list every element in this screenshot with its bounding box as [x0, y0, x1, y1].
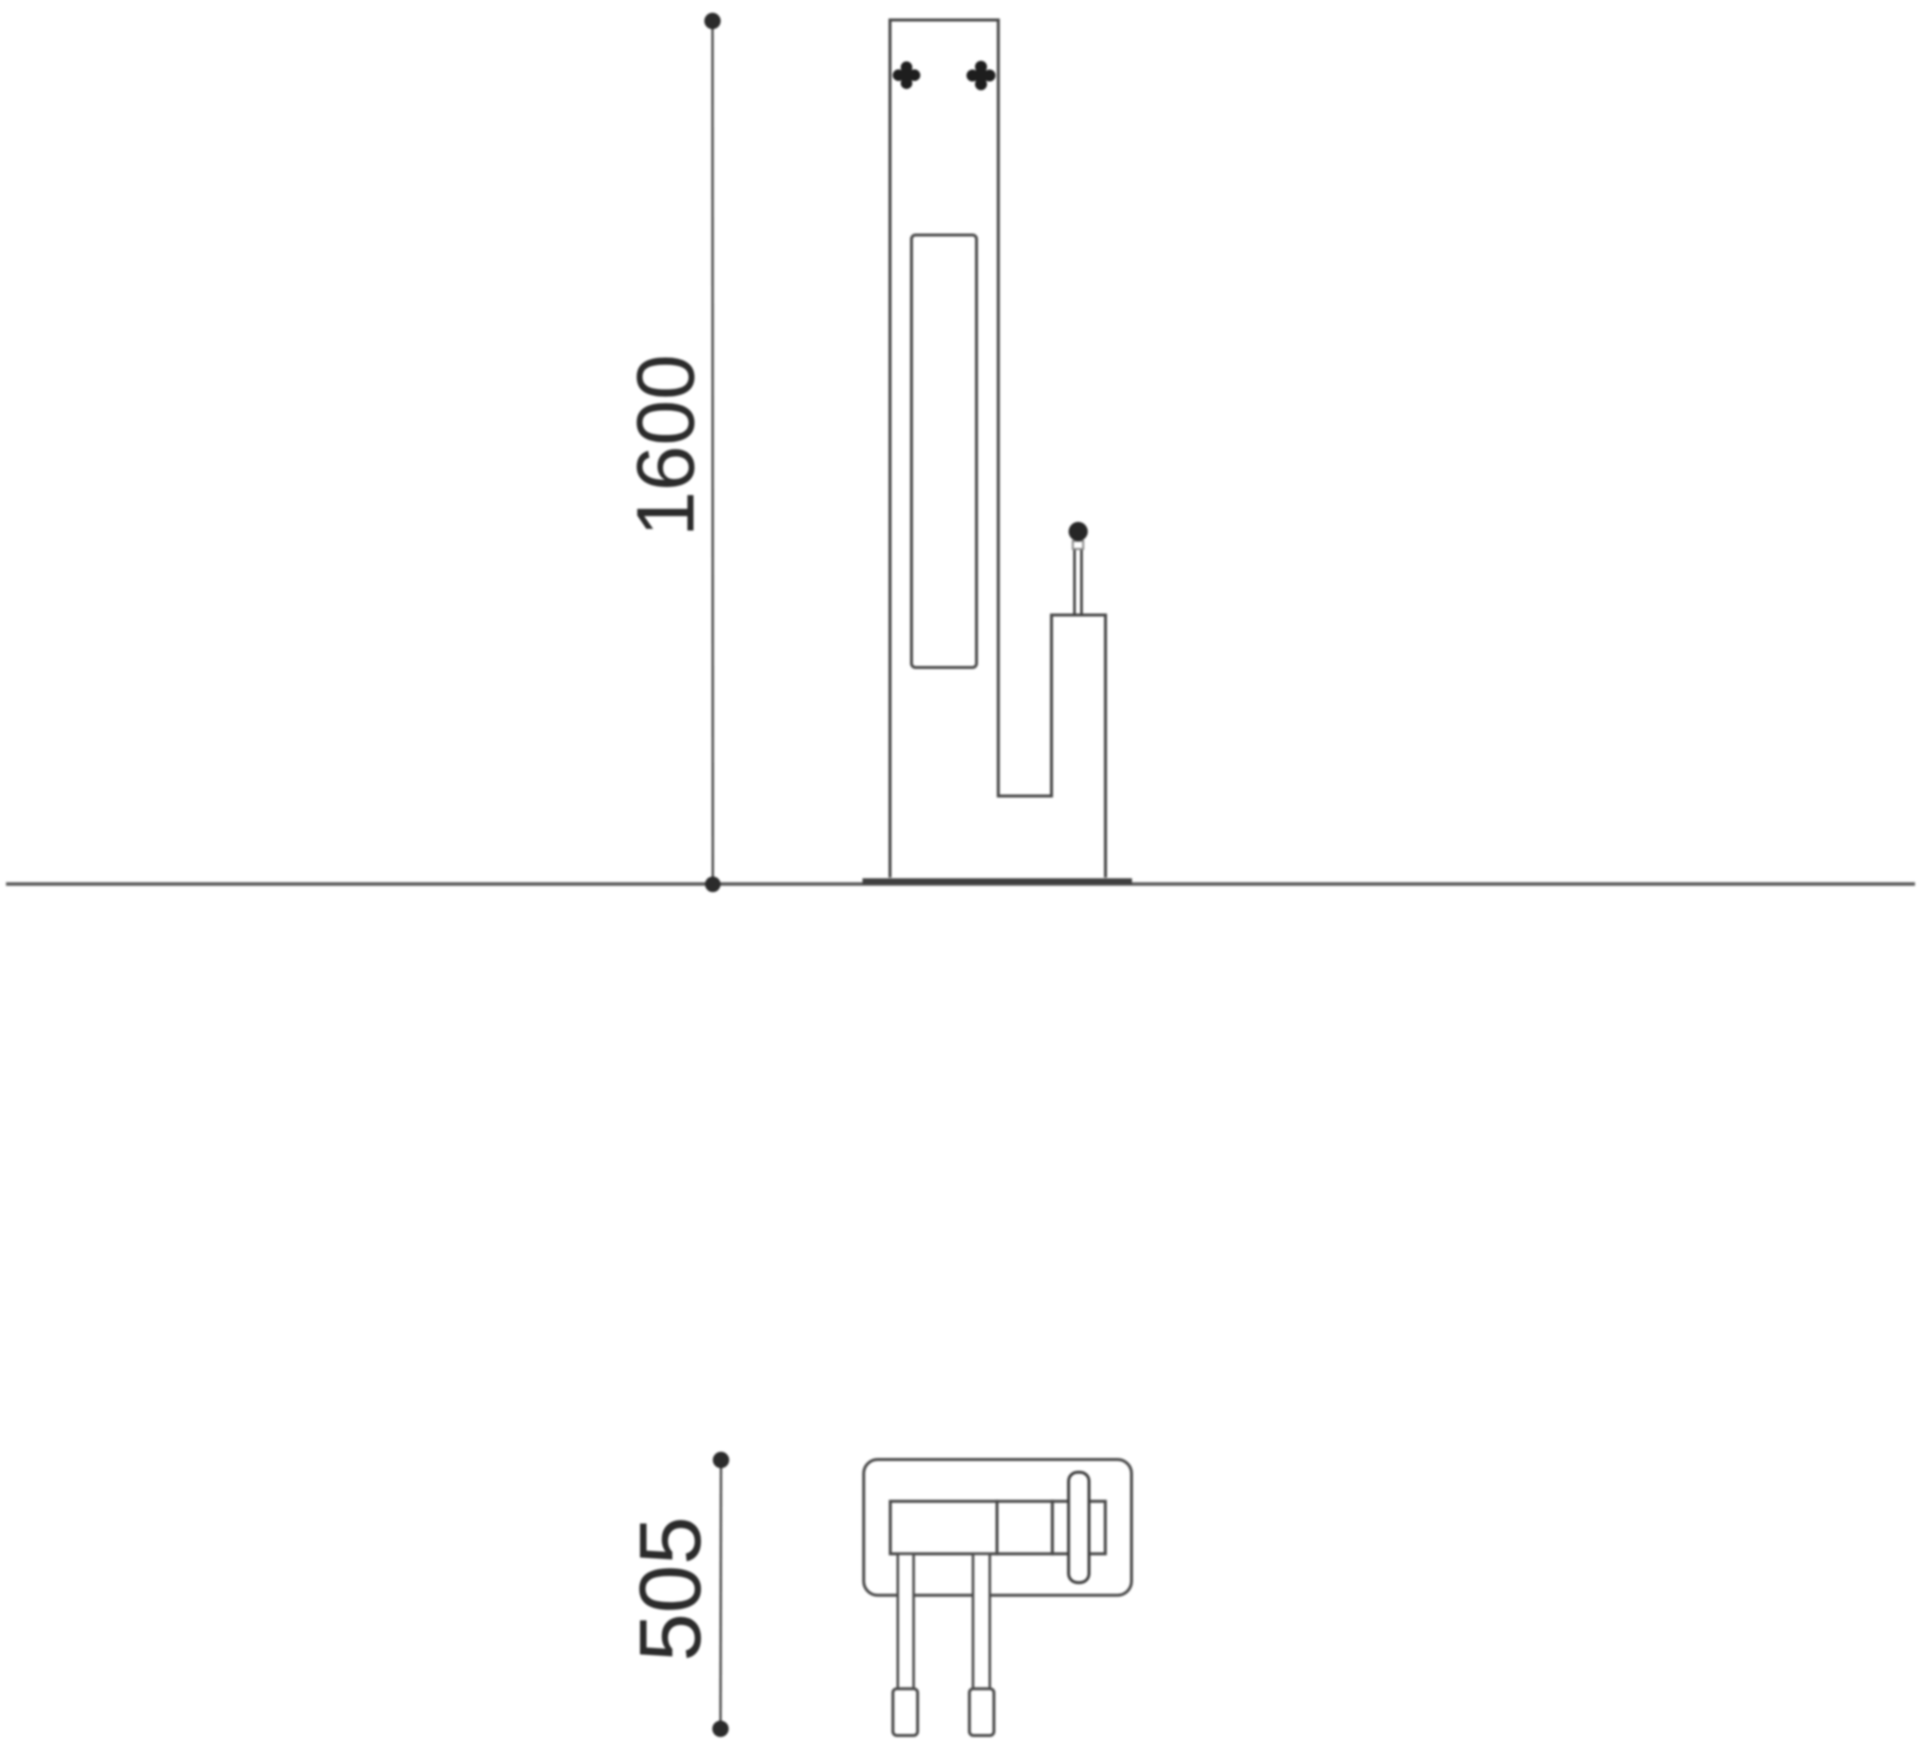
- svg-text:1600: 1600: [621, 354, 712, 536]
- svg-text:505: 505: [622, 1516, 719, 1661]
